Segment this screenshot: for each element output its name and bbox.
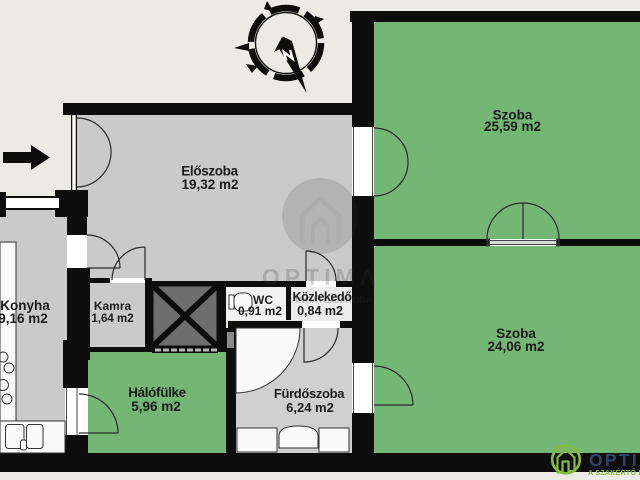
svg-text:Hálófülke: Hálófülke bbox=[128, 385, 186, 400]
svg-text:Kamra: Kamra bbox=[94, 299, 132, 313]
svg-text:9,16 m2: 9,16 m2 bbox=[0, 311, 48, 326]
svg-text:OPTIM: OPTIM bbox=[589, 450, 640, 470]
svg-text:24,06 m2: 24,06 m2 bbox=[487, 339, 544, 354]
svg-text:OPTIMΛ: OPTIMΛ bbox=[262, 264, 380, 290]
svg-text:Közlekedő: Közlekedő bbox=[293, 290, 353, 304]
svg-text:25,59 m2: 25,59 m2 bbox=[484, 119, 541, 134]
svg-text:6,24 m2: 6,24 m2 bbox=[286, 400, 334, 415]
svg-text:0,91 m2: 0,91 m2 bbox=[238, 304, 282, 318]
svg-text:19,32 m2: 19,32 m2 bbox=[181, 177, 238, 192]
svg-text:Fürdőszoba: Fürdőszoba bbox=[274, 386, 345, 401]
svg-text:1,64 m2: 1,64 m2 bbox=[91, 313, 133, 325]
svg-text:0,84 m2: 0,84 m2 bbox=[297, 304, 343, 318]
svg-text:A SZAKÉRTŐ INGAT: A SZAKÉRTŐ INGAT bbox=[588, 468, 640, 477]
svg-text:5,96 m2: 5,96 m2 bbox=[131, 399, 181, 414]
